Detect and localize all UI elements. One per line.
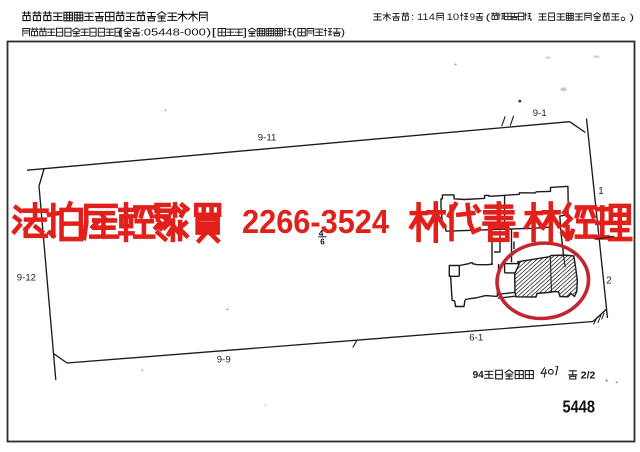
- svg-text:]: ]: [243, 27, 248, 38]
- svg-text::: :: [411, 12, 414, 23]
- svg-text:9-9: 9-9: [217, 354, 231, 365]
- svg-text:9-1: 9-1: [533, 108, 547, 119]
- svg-text:): ): [630, 12, 635, 23]
- svg-text:94: 94: [473, 370, 485, 381]
- svg-text:6-1: 6-1: [469, 333, 483, 344]
- svg-text:9-11: 9-11: [258, 132, 277, 143]
- svg-text:10: 10: [447, 12, 460, 23]
- svg-text:2/2: 2/2: [581, 369, 596, 381]
- svg-text:114: 114: [417, 12, 435, 23]
- svg-text:9-12: 9-12: [17, 273, 36, 284]
- svg-text:1: 1: [598, 186, 603, 197]
- svg-text:5448: 5448: [563, 396, 596, 416]
- svg-text:[: [: [212, 27, 217, 38]
- svg-text:): ): [206, 27, 211, 38]
- svg-text:2266-3524: 2266-3524: [242, 203, 390, 240]
- svg-text:05448-000: 05448-000: [144, 27, 207, 38]
- svg-text:2: 2: [606, 275, 611, 286]
- svg-text:9: 9: [470, 12, 475, 23]
- svg-text:): ): [341, 27, 345, 38]
- svg-text:6: 6: [320, 237, 325, 246]
